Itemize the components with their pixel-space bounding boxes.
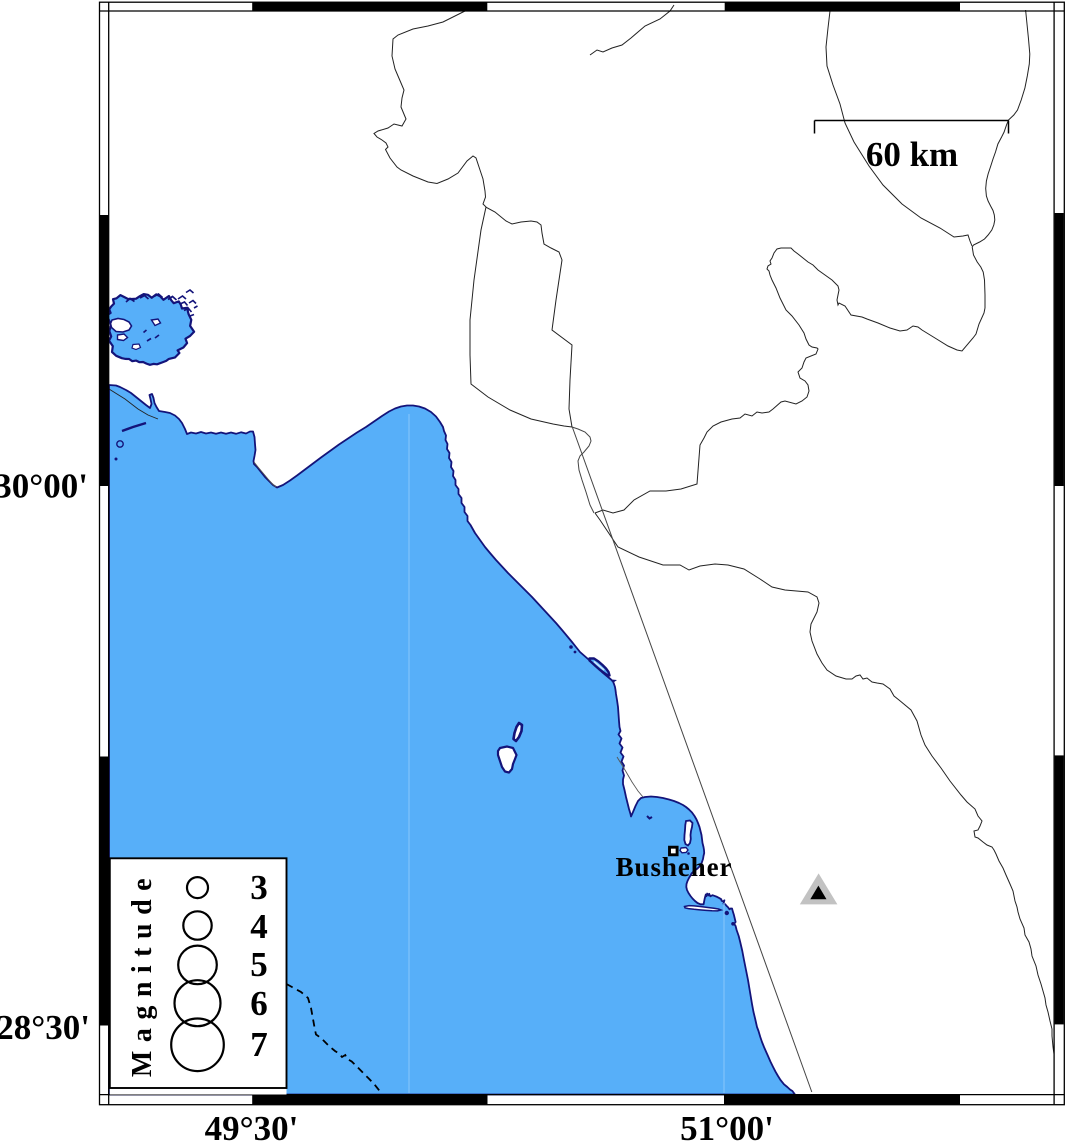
svg-text:5: 5 [250,945,268,984]
svg-text:4: 4 [250,907,268,946]
svg-text:60 km: 60 km [866,135,958,174]
svg-text:30°00': 30°00' [0,467,88,506]
svg-text:28°30': 28°30' [0,1008,90,1047]
svg-text:3: 3 [250,868,268,907]
svg-text:51°00': 51°00' [680,1109,774,1143]
svg-text:Busheher: Busheher [616,852,733,882]
svg-text:Magnitude: Magnitude [127,870,158,1077]
svg-text:7: 7 [250,1025,268,1064]
svg-text:6: 6 [250,984,268,1023]
svg-text:49°30': 49°30' [205,1109,299,1143]
